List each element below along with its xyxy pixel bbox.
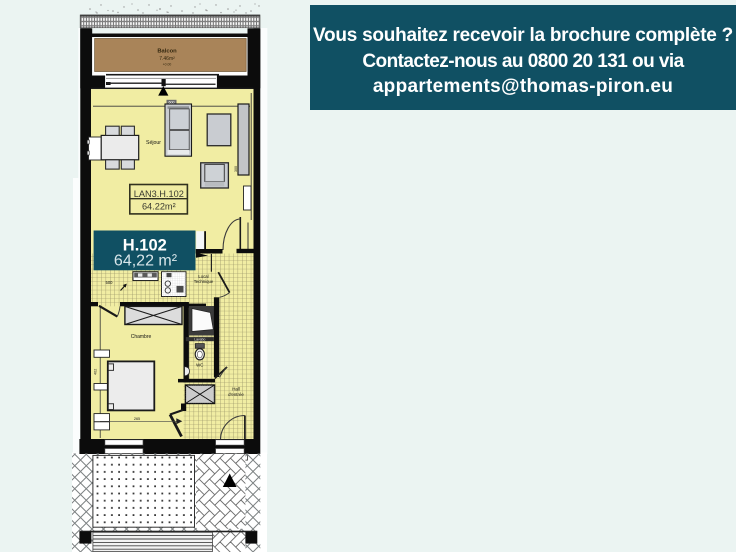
svg-text:402: 402 [94, 369, 98, 375]
svg-text:265: 265 [134, 417, 140, 421]
svg-text:300: 300 [234, 166, 238, 172]
svg-text:Chambre: Chambre [131, 334, 152, 340]
svg-text:LAN3.H.102: LAN3.H.102 [134, 189, 184, 199]
svg-text:d'entrée: d'entrée [228, 392, 244, 397]
svg-text:64.22m²: 64.22m² [142, 201, 176, 211]
svg-text:WC: WC [196, 362, 203, 367]
svg-text:Séjour: Séjour [146, 140, 161, 146]
svg-text:Hall: Hall [232, 387, 240, 392]
svg-text:7.46m²: 7.46m² [159, 56, 175, 62]
svg-text:500: 500 [106, 280, 114, 285]
svg-text:Local: Local [198, 274, 208, 279]
svg-text:64,22 m²: 64,22 m² [114, 253, 178, 270]
svg-text:Lavabo: Lavabo [194, 338, 205, 342]
svg-text:Technique: Technique [194, 279, 214, 284]
svg-text:+0.00: +0.00 [163, 63, 172, 67]
svg-text:Balcon: Balcon [157, 49, 177, 55]
